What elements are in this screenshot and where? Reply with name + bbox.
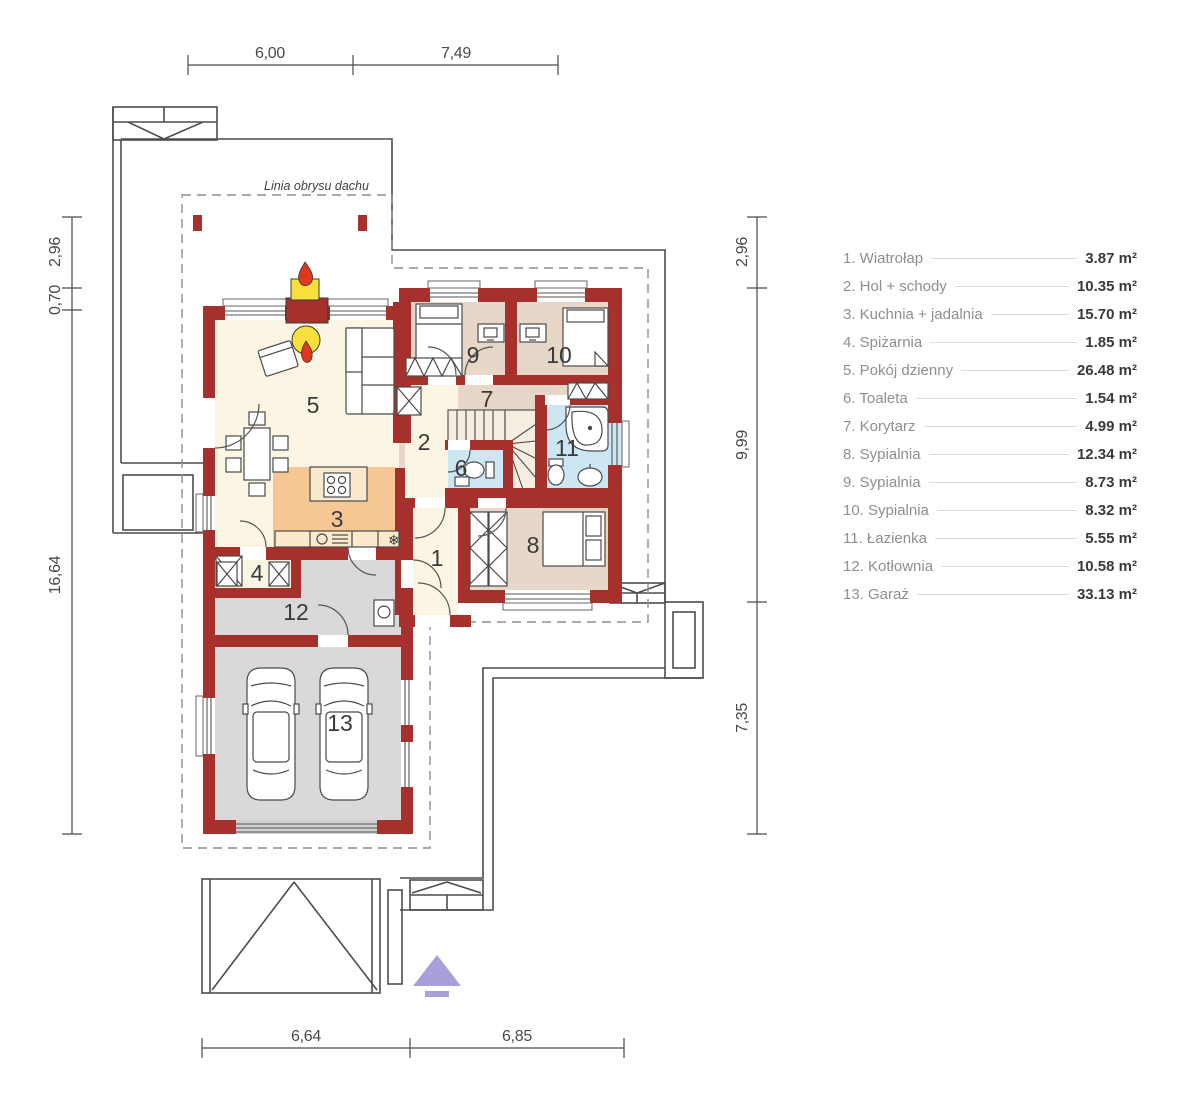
desk-room10 xyxy=(520,324,546,342)
legend-leader-line xyxy=(935,538,1077,539)
legend-item: 13. Garaż33.13 m² xyxy=(843,580,1137,608)
legend-item: 2. Hol + schody10.35 m² xyxy=(843,272,1137,300)
fridge-icon: ❄ xyxy=(388,532,400,548)
legend-item: 5. Pokój dzienny26.48 m² xyxy=(843,356,1137,384)
legend-area: 4.99 m² xyxy=(1085,418,1137,435)
wardrobe-corridor xyxy=(568,383,608,399)
entrance-arrow-icon xyxy=(413,955,461,997)
legend-label: 2. Hol + schody xyxy=(843,278,947,295)
legend-label: 7. Korytarz xyxy=(843,418,916,435)
room-label-13: 13 xyxy=(327,710,353,736)
legend-area: 12.34 m² xyxy=(1077,446,1137,463)
bed-room9 xyxy=(416,304,462,360)
legend-item: 9. Sypialnia8.73 m² xyxy=(843,468,1137,496)
washer xyxy=(374,600,394,626)
legend-area: 1.85 m² xyxy=(1085,334,1137,351)
legend-label: 9. Sypialnia xyxy=(843,474,921,491)
car-left xyxy=(243,668,299,800)
garage-floor xyxy=(215,647,401,833)
dim-right-2: 9,99 xyxy=(734,430,751,460)
legend-label: 3. Kuchnia + jadalnia xyxy=(843,306,983,323)
bathroom-wc xyxy=(548,459,564,485)
legend-leader-line xyxy=(941,566,1069,567)
legend-leader-line xyxy=(929,454,1069,455)
kitchen-counter xyxy=(275,531,399,547)
legend-area: 1.54 m² xyxy=(1085,390,1137,407)
legend-area: 8.73 m² xyxy=(1085,474,1137,491)
legend-item: 10. Sypialnia8.32 m² xyxy=(843,496,1137,524)
dim-bottom-1: 6,64 xyxy=(291,1028,321,1045)
garage-door xyxy=(236,820,377,834)
legend-area: 5.55 m² xyxy=(1085,530,1137,547)
legend-area: 15.70 m² xyxy=(1077,306,1137,323)
legend-leader-line xyxy=(930,342,1077,343)
roof-outline-label: Linia obrysu dachu xyxy=(264,179,369,193)
legend-item: 3. Kuchnia + jadalnia15.70 m² xyxy=(843,300,1137,328)
dim-top-2: 7,49 xyxy=(441,45,471,62)
legend-item: 8. Sypialnia12.34 m² xyxy=(843,440,1137,468)
legend-leader-line xyxy=(929,482,1078,483)
legend-label: 1. Wiatrołap xyxy=(843,250,923,267)
legend-item: 12. Kotłownia10.58 m² xyxy=(843,552,1137,580)
legend-area: 10.58 m² xyxy=(1077,558,1137,575)
legend-area: 33.13 m² xyxy=(1077,586,1137,603)
kitchen-island xyxy=(310,467,367,501)
room-label-4: 4 xyxy=(251,560,264,586)
legend-label: 4. Spiżarnia xyxy=(843,334,922,351)
dim-right-1: 2,96 xyxy=(734,237,751,267)
dim-left-1: 2,96 xyxy=(47,237,64,267)
legend-label: 11. Łazienka xyxy=(843,530,927,547)
bed-room8 xyxy=(543,512,605,566)
legend-label: 6. Toaleta xyxy=(843,390,908,407)
dim-top-1: 6,00 xyxy=(255,45,285,62)
dim-left-3: 16,64 xyxy=(47,555,64,594)
legend-leader-line xyxy=(955,286,1069,287)
legend-leader-line xyxy=(937,510,1077,511)
room-label-8: 8 xyxy=(527,532,540,558)
sofa xyxy=(346,328,394,414)
legend-leader-line xyxy=(916,398,1078,399)
floor-plan-page: { "plan": { "roof_outline_label": "Linia… xyxy=(0,0,1200,1100)
terrace-posts xyxy=(193,215,367,231)
legend-item: 7. Korytarz4.99 m² xyxy=(843,412,1137,440)
legend-item: 4. Spiżarnia1.85 m² xyxy=(843,328,1137,356)
room-label-6: 6 xyxy=(455,455,468,481)
legend-leader-line xyxy=(961,370,1069,371)
legend-area: 3.87 m² xyxy=(1085,250,1137,267)
dim-left-2: 0,70 xyxy=(47,285,64,315)
room-label-2: 2 xyxy=(418,429,431,455)
room-label-3: 3 xyxy=(331,506,344,532)
legend-label: 5. Pokój dzienny xyxy=(843,362,953,379)
dim-bottom-2: 6,85 xyxy=(502,1028,532,1045)
legend-area: 10.35 m² xyxy=(1077,278,1137,295)
room-label-10: 10 xyxy=(546,342,572,368)
dim-right-3: 7,35 xyxy=(734,703,751,733)
legend-label: 10. Sypialnia xyxy=(843,502,929,519)
legend-label: 12. Kotłownia xyxy=(843,558,933,575)
wardrobe-room9 xyxy=(406,358,462,376)
desk-room9 xyxy=(478,324,504,342)
legend-leader-line xyxy=(924,426,1078,427)
room-label-12: 12 xyxy=(283,599,309,625)
legend-area: 8.32 m² xyxy=(1085,502,1137,519)
room-label-1: 1 xyxy=(431,545,444,571)
legend-label: 13. Garaż xyxy=(843,586,909,603)
legend-item: 1. Wiatrołap3.87 m² xyxy=(843,244,1137,272)
room-legend: 1. Wiatrołap3.87 m² 2. Hol + schody10.35… xyxy=(843,244,1137,608)
room-label-7: 7 xyxy=(481,386,494,412)
room-label-5: 5 xyxy=(307,392,320,418)
room-label-11: 11 xyxy=(555,435,579,461)
legend-item: 11. Łazienka5.55 m² xyxy=(843,524,1137,552)
legend-area: 26.48 m² xyxy=(1077,362,1137,379)
legend-leader-line xyxy=(917,594,1069,595)
chimney-box-hall xyxy=(397,387,421,415)
legend-leader-line xyxy=(931,258,1077,259)
legend-item: 6. Toaleta1.54 m² xyxy=(843,384,1137,412)
legend-leader-line xyxy=(991,314,1069,315)
legend-label: 8. Sypialnia xyxy=(843,446,921,463)
room-label-9: 9 xyxy=(467,342,480,368)
